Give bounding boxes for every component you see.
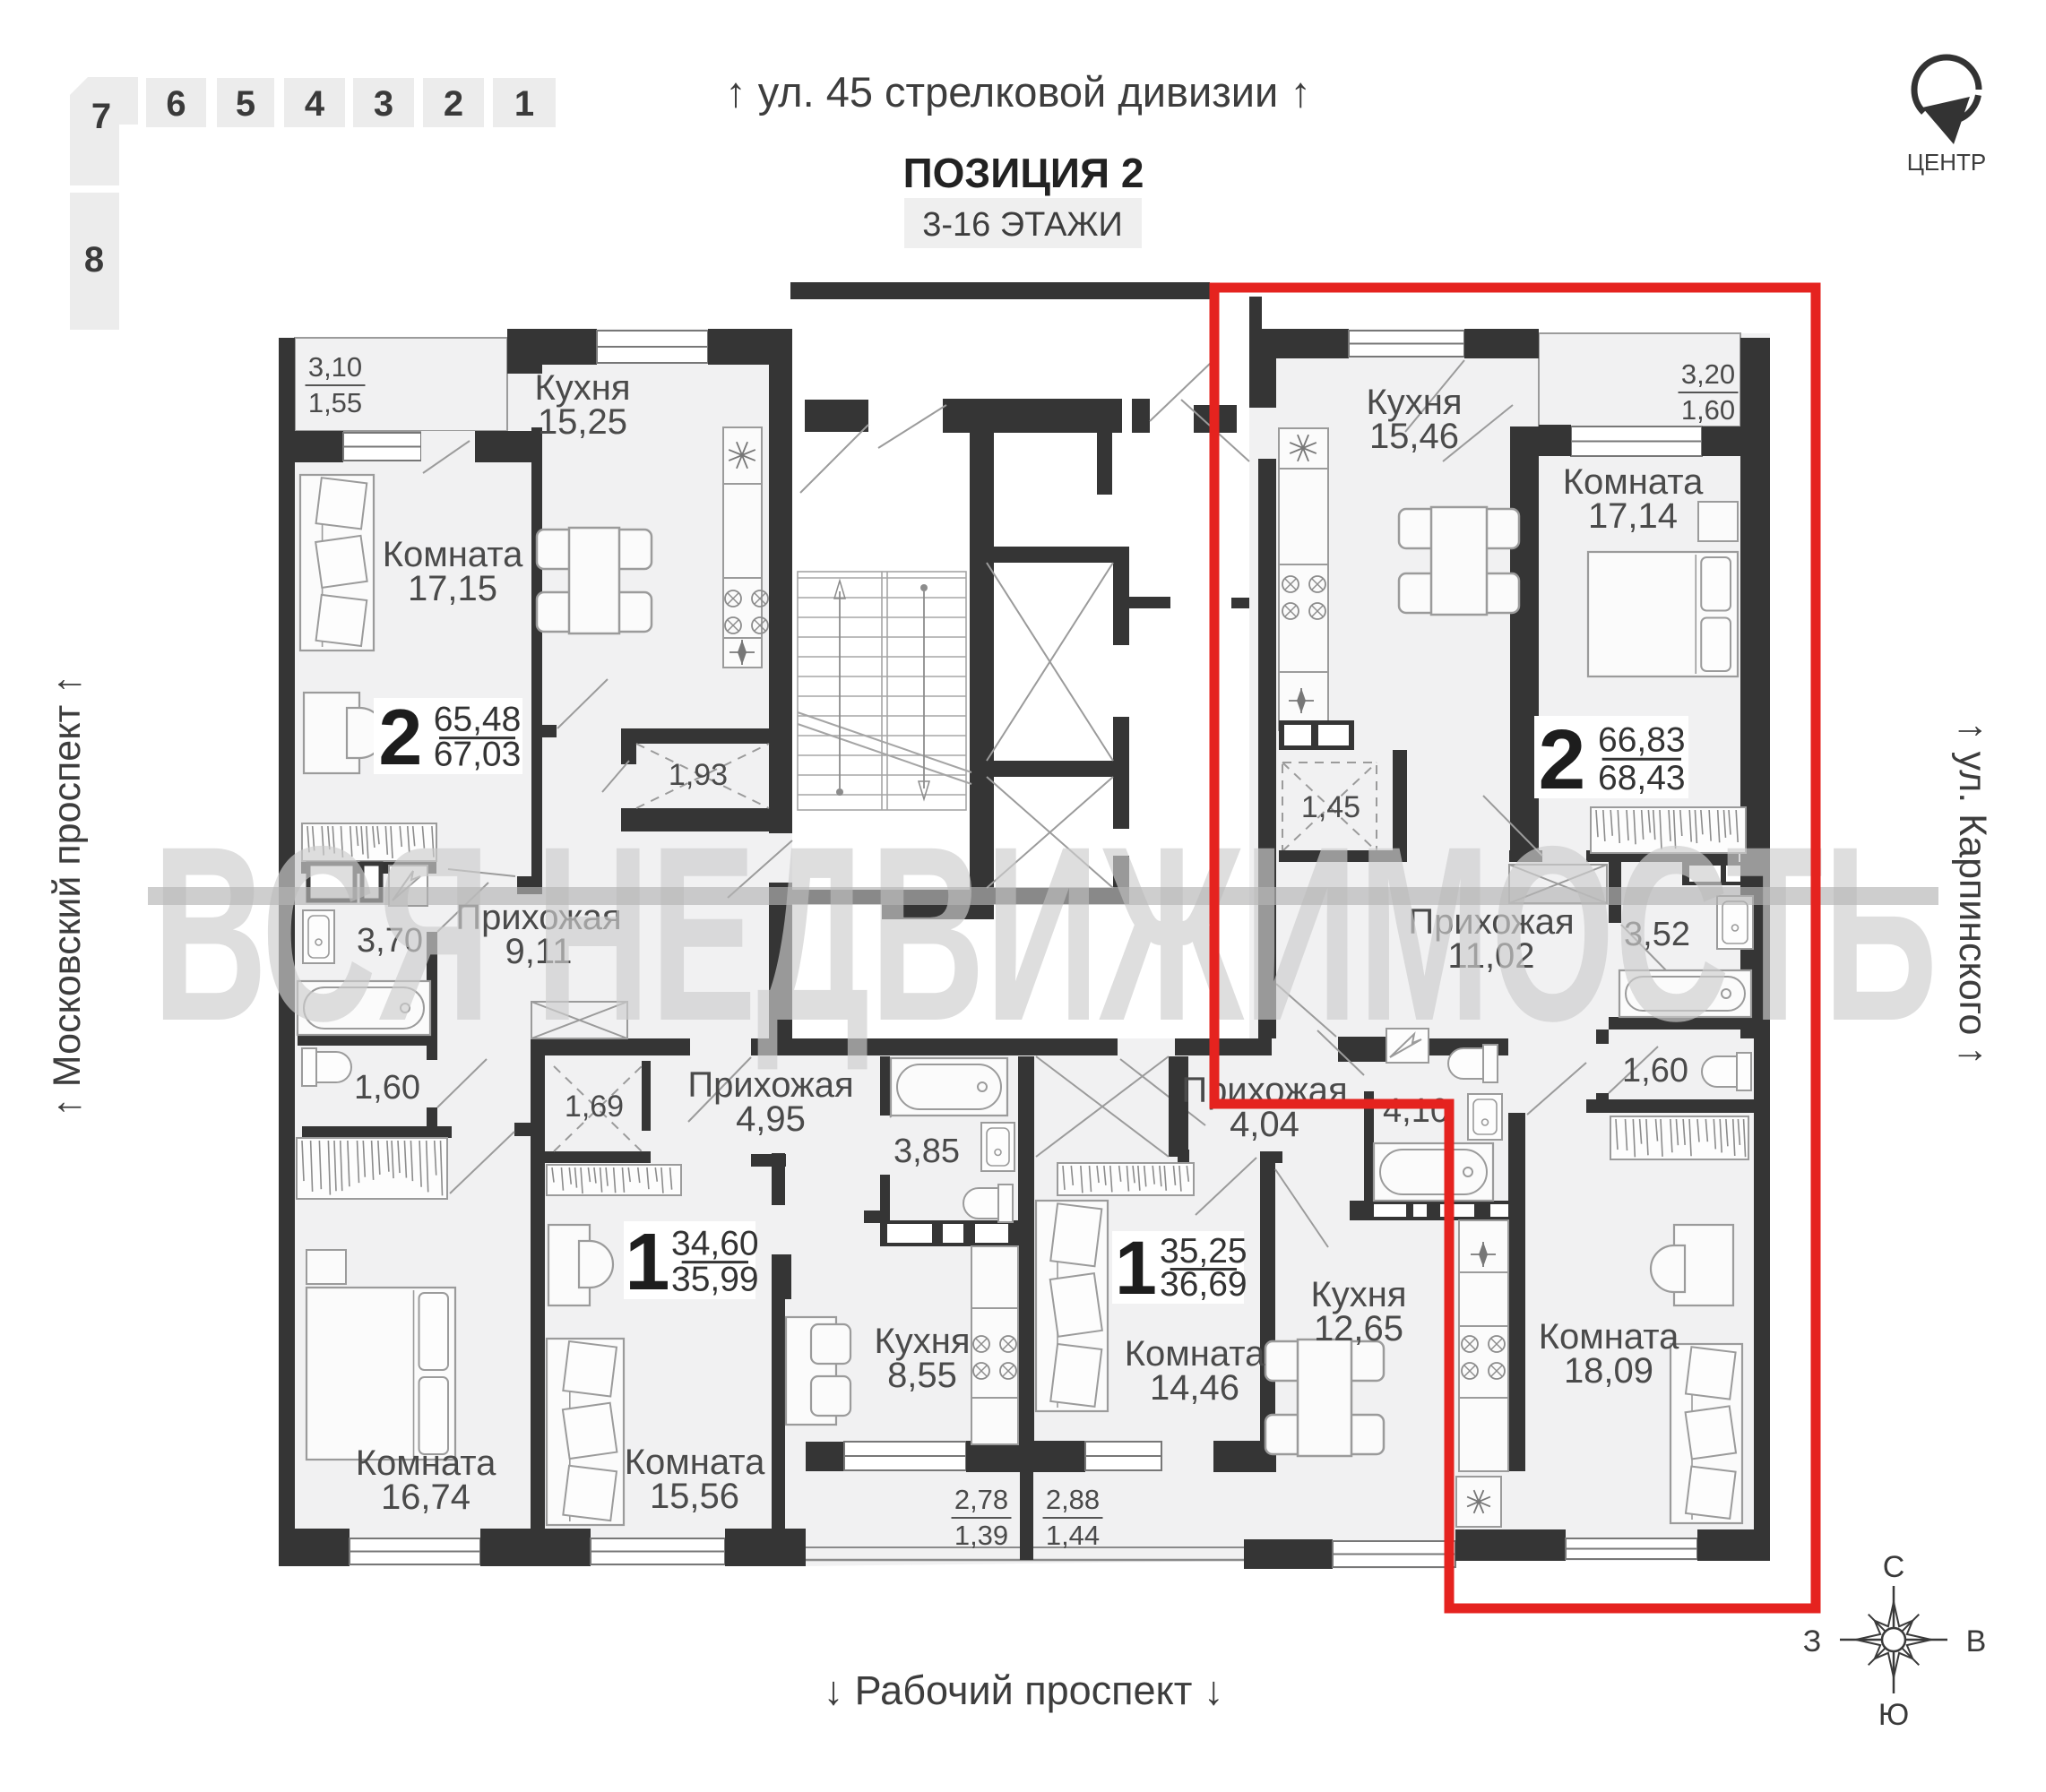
svg-text:1,93: 1,93 xyxy=(669,758,728,792)
svg-text:3: 3 xyxy=(374,84,393,124)
svg-text:Ю: Ю xyxy=(1878,1698,1909,1732)
svg-text:1,39: 1,39 xyxy=(954,1520,1008,1551)
svg-text:8: 8 xyxy=(84,240,104,280)
svg-text:4,95: 4,95 xyxy=(736,1099,806,1139)
svg-text:65,48: 65,48 xyxy=(434,701,522,739)
svg-text:2,78: 2,78 xyxy=(954,1484,1008,1515)
svg-text:34,60: 34,60 xyxy=(671,1224,759,1262)
svg-text:ПОЗИЦИЯ 2: ПОЗИЦИЯ 2 xyxy=(903,150,1144,196)
svg-text:↑ ул. 45 стрелковой дивизии ↑: ↑ ул. 45 стрелковой дивизии ↑ xyxy=(725,68,1311,116)
svg-text:4: 4 xyxy=(305,84,325,124)
svg-text:2: 2 xyxy=(378,693,422,781)
svg-text:6: 6 xyxy=(166,84,186,124)
svg-text:1: 1 xyxy=(625,1218,669,1307)
svg-text:4,10: 4,10 xyxy=(1383,1092,1449,1130)
svg-text:↑ Московский проспект ↑: ↑ Московский проспект ↑ xyxy=(46,675,89,1116)
svg-text:З: З xyxy=(1803,1624,1822,1658)
svg-text:8,55: 8,55 xyxy=(887,1356,957,1395)
svg-text:14,46: 14,46 xyxy=(1150,1368,1239,1408)
svg-text:4,04: 4,04 xyxy=(1230,1105,1299,1144)
svg-text:15,25: 15,25 xyxy=(538,402,627,442)
svg-text:2,88: 2,88 xyxy=(1046,1484,1100,1515)
svg-text:3,85: 3,85 xyxy=(894,1133,960,1170)
svg-text:18,09: 18,09 xyxy=(1564,1351,1653,1391)
svg-text:1,55: 1,55 xyxy=(308,387,362,418)
svg-text:2: 2 xyxy=(444,84,463,124)
svg-text:12,65: 12,65 xyxy=(1314,1309,1403,1348)
svg-text:5: 5 xyxy=(236,84,255,124)
svg-text:1: 1 xyxy=(1115,1226,1157,1310)
svg-text:1: 1 xyxy=(514,84,534,124)
svg-text:17,15: 17,15 xyxy=(408,569,497,608)
svg-text:1,44: 1,44 xyxy=(1046,1520,1100,1551)
svg-text:3,10: 3,10 xyxy=(308,351,362,383)
svg-text:1,60: 1,60 xyxy=(354,1069,420,1107)
svg-text:ЦЕНТР: ЦЕНТР xyxy=(1907,149,1987,176)
svg-text:36,69: 36,69 xyxy=(1160,1265,1247,1304)
svg-text:68,43: 68,43 xyxy=(1598,759,1686,797)
svg-text:1,60: 1,60 xyxy=(1681,394,1735,426)
svg-text:15,56: 15,56 xyxy=(650,1477,739,1516)
svg-text:С: С xyxy=(1883,1550,1905,1584)
svg-text:15,46: 15,46 xyxy=(1369,417,1459,456)
svg-text:ВСЯ НЕДВИЖИМОСТЬ: ВСЯ НЕДВИЖИМОСТЬ xyxy=(152,794,1938,1073)
svg-text:↑ ул. Карпинского ↑: ↑ ул. Карпинского ↑ xyxy=(1951,721,1994,1065)
svg-text:17,14: 17,14 xyxy=(1588,496,1678,536)
svg-text:35,99: 35,99 xyxy=(671,1260,759,1298)
svg-text:7: 7 xyxy=(91,97,111,136)
svg-text:3-16 ЭТАЖИ: 3-16 ЭТАЖИ xyxy=(922,206,1123,244)
svg-text:1,69: 1,69 xyxy=(565,1090,624,1124)
svg-text:66,83: 66,83 xyxy=(1598,721,1686,760)
svg-text:16,74: 16,74 xyxy=(381,1478,470,1517)
svg-text:67,03: 67,03 xyxy=(434,736,522,774)
svg-text:3,20: 3,20 xyxy=(1681,358,1735,390)
svg-text:↓ Рабочий проспект ↓: ↓ Рабочий проспект ↓ xyxy=(824,1667,1224,1713)
svg-text:В: В xyxy=(1966,1624,1987,1658)
